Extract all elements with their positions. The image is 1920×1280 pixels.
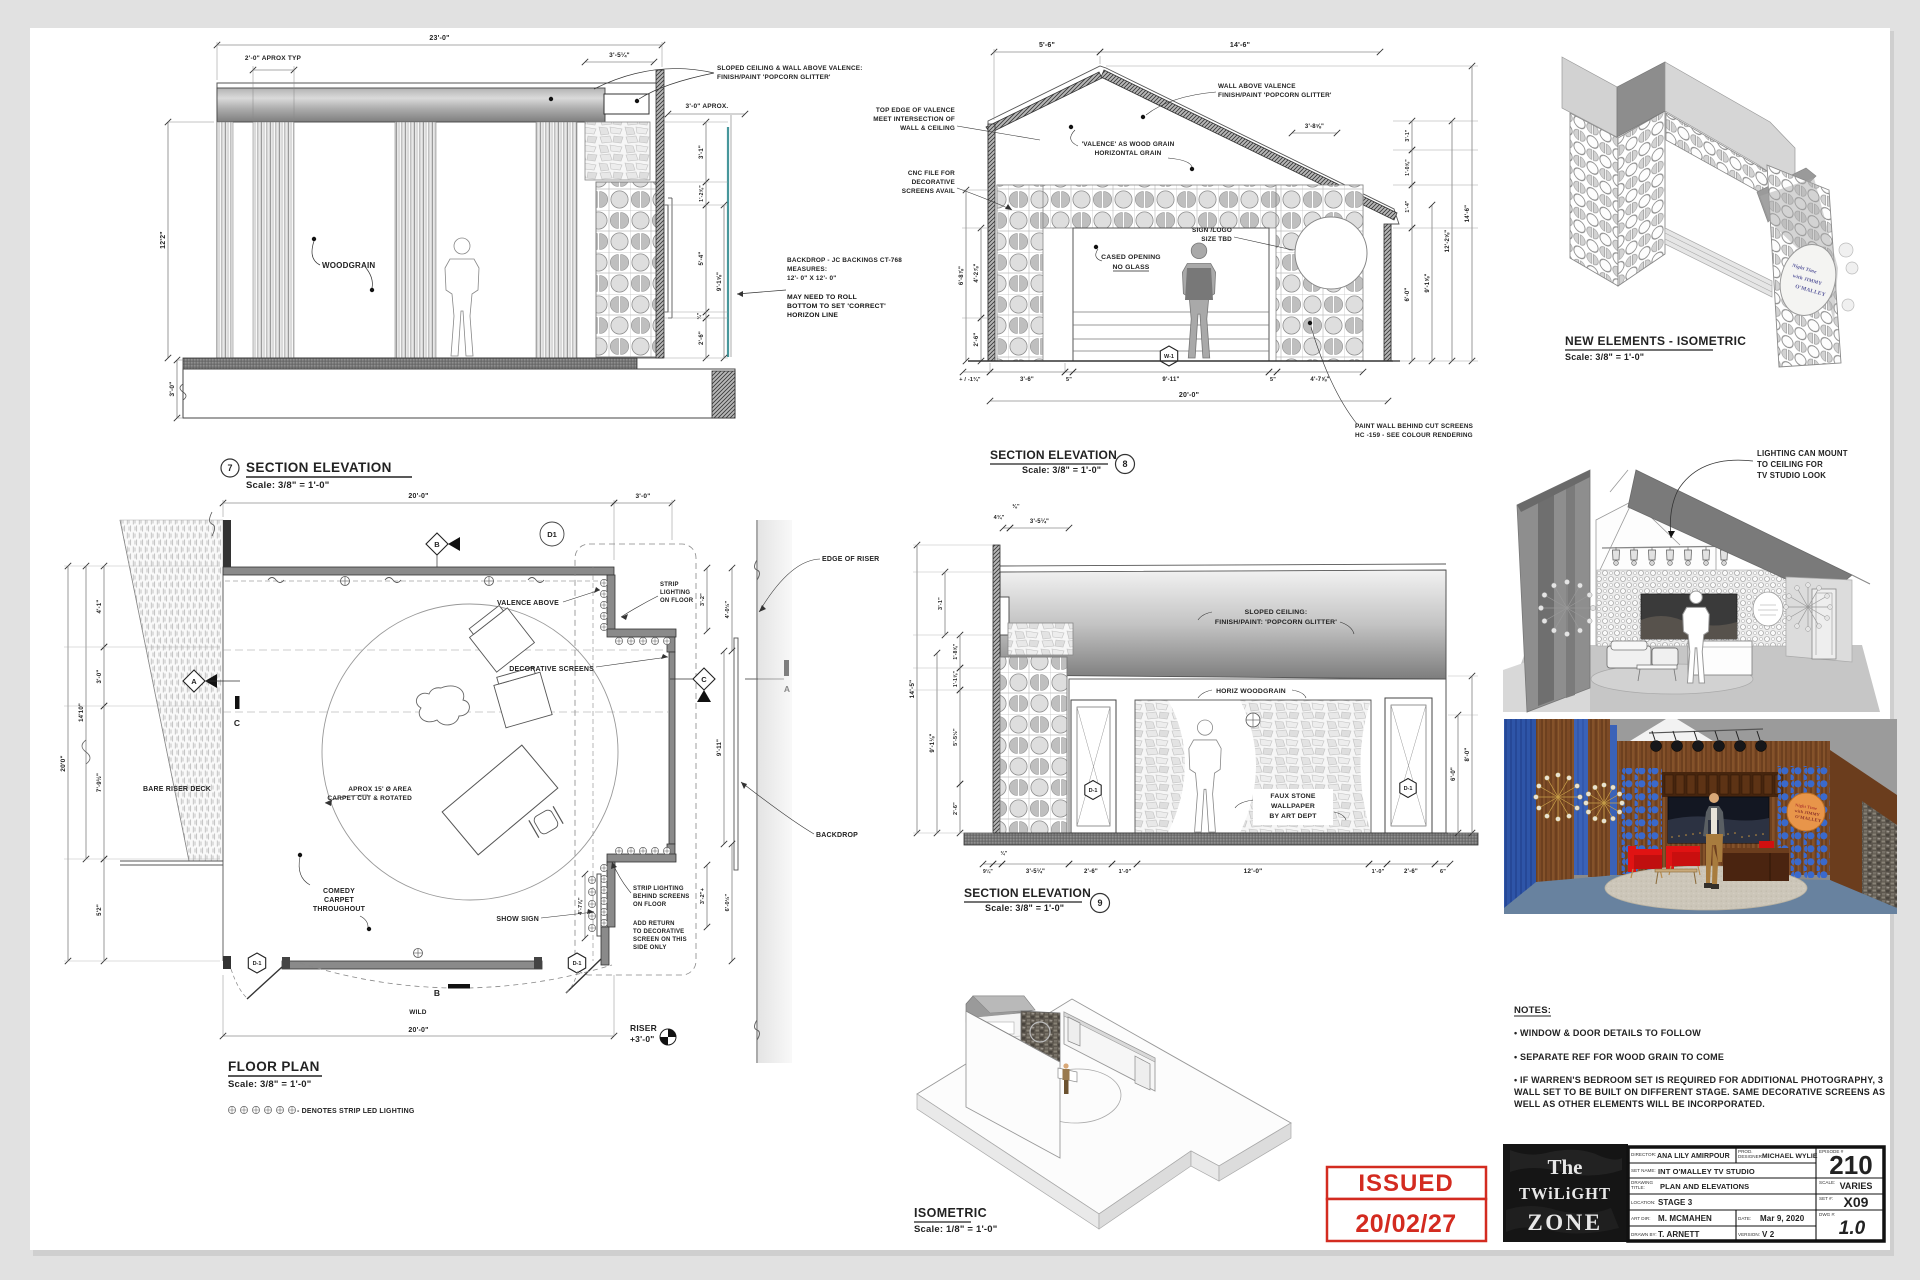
svg-text:RISER: RISER bbox=[630, 1023, 657, 1033]
svg-text:7'-9½": 7'-9½" bbox=[96, 773, 103, 792]
svg-text:6'-0": 6'-0" bbox=[1405, 288, 1411, 302]
svg-text:NOTES:: NOTES: bbox=[1514, 1005, 1551, 1016]
svg-text:VARIES: VARIES bbox=[1840, 1181, 1873, 1191]
svg-text:DATE:: DATE: bbox=[1738, 1216, 1751, 1221]
svg-text:3'-2": 3'-2" bbox=[700, 593, 706, 606]
svg-text:9'-11": 9'-11" bbox=[1162, 377, 1179, 383]
svg-text:9'-1⅛": 9'-1⅛" bbox=[930, 733, 936, 752]
svg-text:8'-0": 8'-0" bbox=[1465, 748, 1471, 762]
svg-text:DIRECTOR:: DIRECTOR: bbox=[1631, 1152, 1656, 1157]
svg-text:APROX 15' Ø AREA: APROX 15' Ø AREA bbox=[348, 786, 412, 793]
svg-text:HORIZONTAL GRAIN: HORIZONTAL GRAIN bbox=[1095, 150, 1162, 157]
svg-text:D-1: D-1 bbox=[253, 961, 262, 967]
svg-text:1'-8⅝": 1'-8⅝" bbox=[953, 643, 959, 660]
svg-text:9'-11": 9'-11" bbox=[717, 739, 723, 756]
svg-text:9: 9 bbox=[1097, 898, 1102, 908]
svg-text:20'0": 20'0" bbox=[60, 755, 67, 771]
svg-text:STRIP: STRIP bbox=[660, 582, 679, 588]
svg-text:1'-4": 1'-4" bbox=[1405, 200, 1411, 213]
svg-text:3'-2"+: 3'-2"+ bbox=[700, 888, 706, 904]
svg-text:M. MCMAHEN: M. MCMAHEN bbox=[1658, 1214, 1712, 1223]
svg-text:DECORATIVE SCREENS: DECORATIVE SCREENS bbox=[509, 666, 594, 673]
svg-text:LIGHTING: LIGHTING bbox=[660, 590, 690, 596]
svg-text:WELL AS OTHER ELEMENTS WILL BE: WELL AS OTHER ELEMENTS WILL BE INCORPORA… bbox=[1514, 1099, 1765, 1109]
svg-text:PAINT WALL BEHIND CUT SCREENS: PAINT WALL BEHIND CUT SCREENS bbox=[1355, 423, 1474, 430]
svg-text:Scale: 3/8" = 1'-0": Scale: 3/8" = 1'-0" bbox=[246, 480, 329, 491]
svg-text:9'-1⅝": 9'-1⅝" bbox=[717, 272, 723, 291]
svg-text:B: B bbox=[434, 988, 440, 998]
svg-text:3'-1": 3'-1" bbox=[1405, 129, 1411, 142]
svg-text:12'2": 12'2" bbox=[160, 231, 167, 249]
svg-text:COMEDY: COMEDY bbox=[323, 888, 355, 895]
svg-text:+3'-0": +3'-0" bbox=[630, 1034, 655, 1044]
svg-text:3'-0": 3'-0" bbox=[635, 493, 650, 500]
svg-text:PLAN AND ELEVATIONS: PLAN AND ELEVATIONS bbox=[1660, 1182, 1749, 1191]
svg-text:TO DECORATIVE: TO DECORATIVE bbox=[633, 929, 684, 935]
svg-text:6": 6" bbox=[1440, 869, 1446, 875]
svg-text:C: C bbox=[701, 675, 707, 684]
svg-text:3'-8⅝": 3'-8⅝" bbox=[1305, 124, 1324, 130]
svg-text:4'-2⅞": 4'-2⅞" bbox=[974, 263, 980, 282]
svg-text:SCALE:: SCALE: bbox=[1819, 1180, 1835, 1185]
svg-text:SIGN /LOGO: SIGN /LOGO bbox=[1192, 227, 1232, 234]
svg-text:THROUGHOUT: THROUGHOUT bbox=[313, 906, 366, 913]
svg-text:1'-0⅝": 1'-0⅝" bbox=[1405, 159, 1411, 176]
svg-text:12'-0": 12'-0" bbox=[1244, 868, 1263, 875]
svg-text:5'2": 5'2" bbox=[97, 904, 103, 916]
svg-text:5'-4": 5'-4" bbox=[699, 252, 705, 266]
svg-text:¾": ¾" bbox=[1001, 850, 1008, 857]
svg-text:D-1: D-1 bbox=[1089, 788, 1098, 794]
svg-text:SIZE TBD: SIZE TBD bbox=[1201, 236, 1232, 243]
svg-text:CARPET CUT & ROTATED: CARPET CUT & ROTATED bbox=[327, 795, 412, 802]
svg-text:3'-0": 3'-0" bbox=[169, 381, 176, 396]
svg-text:MEASURES:: MEASURES: bbox=[787, 266, 827, 273]
svg-text:D1: D1 bbox=[547, 530, 557, 539]
svg-text:MICHAEL WYLIE: MICHAEL WYLIE bbox=[1762, 1153, 1818, 1160]
svg-text:Scale: 3/8" = 1'-0": Scale: 3/8" = 1'-0" bbox=[1022, 465, 1101, 475]
svg-text:STAGE 3: STAGE 3 bbox=[1658, 1198, 1693, 1207]
svg-text:W-1: W-1 bbox=[1164, 354, 1174, 360]
svg-text:SHOW SIGN: SHOW SIGN bbox=[496, 916, 539, 923]
svg-text:SET NAME:: SET NAME: bbox=[1631, 1168, 1656, 1173]
svg-text:ON FLOOR: ON FLOOR bbox=[633, 902, 667, 908]
svg-text:1.0: 1.0 bbox=[1839, 1218, 1866, 1239]
svg-text:DECORATIVE: DECORATIVE bbox=[912, 179, 956, 186]
svg-text:SCREEN ON THIS: SCREEN ON THIS bbox=[633, 937, 687, 943]
svg-text:14'-5": 14'-5" bbox=[909, 680, 916, 699]
svg-text:ZONE: ZONE bbox=[1527, 1210, 1602, 1235]
svg-text:FINISH/PAINT: 'POPCORN GLITTER: FINISH/PAINT: 'POPCORN GLITTER' bbox=[1215, 619, 1337, 626]
svg-text:WALL SET TO BE BUILT ON DIFFER: WALL SET TO BE BUILT ON DIFFERENT STAGE.… bbox=[1514, 1087, 1885, 1097]
svg-text:SCREENS AVAIL: SCREENS AVAIL bbox=[902, 188, 955, 195]
svg-text:4'-7⅝": 4'-7⅝" bbox=[1310, 377, 1329, 383]
svg-text:SECTION ELEVATION: SECTION ELEVATION bbox=[990, 448, 1117, 462]
svg-text:WOODGRAIN: WOODGRAIN bbox=[322, 261, 375, 270]
svg-text:20'-0": 20'-0" bbox=[408, 493, 428, 500]
svg-text:FINISH/PAINT 'POPCORN GLITTER': FINISH/PAINT 'POPCORN GLITTER' bbox=[1218, 92, 1332, 99]
svg-text:3'-5¼": 3'-5¼" bbox=[1030, 518, 1049, 525]
svg-text:BARE RISER DECK: BARE RISER DECK bbox=[143, 786, 211, 793]
svg-text:D-1: D-1 bbox=[573, 961, 582, 967]
svg-text:VALENCE ABOVE: VALENCE ABOVE bbox=[497, 600, 559, 607]
svg-text:23'-0": 23'-0" bbox=[429, 35, 449, 42]
svg-text:4'-7⅞": 4'-7⅞" bbox=[578, 897, 584, 915]
svg-text:• WINDOW & DOOR DETAILS TO FO: • WINDOW & DOOR DETAILS TO FOLLOW bbox=[1514, 1028, 1701, 1038]
svg-text:- DENOTES STRIP LED LIGHTING: - DENOTES STRIP LED LIGHTING bbox=[297, 1108, 415, 1115]
svg-text:3'-1": 3'-1" bbox=[699, 145, 705, 159]
svg-text:Scale: 1/8" = 1'-0": Scale: 1/8" = 1'-0" bbox=[914, 1224, 997, 1235]
svg-text:ON FLOOR: ON FLOOR bbox=[660, 598, 694, 604]
svg-text:HORIZ WOODGRAIN: HORIZ WOODGRAIN bbox=[1216, 688, 1286, 695]
svg-text:7: 7 bbox=[227, 463, 232, 473]
svg-text:12'-2⅝": 12'-2⅝" bbox=[1445, 230, 1451, 253]
svg-text:MEET INTERSECTION OF: MEET INTERSECTION OF bbox=[873, 116, 955, 123]
svg-text:3'-5¼": 3'-5¼" bbox=[1026, 868, 1045, 875]
svg-text:WALL ABOVE VALENCE: WALL ABOVE VALENCE bbox=[1218, 83, 1296, 90]
svg-text:TITLE:: TITLE: bbox=[1631, 1185, 1645, 1190]
svg-text:HC -159 - SEE COLOUR RENDERING: HC -159 - SEE COLOUR RENDERING bbox=[1355, 432, 1473, 439]
svg-text:DRAWN BY:: DRAWN BY: bbox=[1631, 1232, 1657, 1237]
svg-text:BEHIND SCREENS: BEHIND SCREENS bbox=[633, 894, 689, 900]
svg-text:ART DIR:: ART DIR: bbox=[1631, 1216, 1651, 1221]
svg-text:ANA LILY AMIRPOUR: ANA LILY AMIRPOUR bbox=[1657, 1153, 1730, 1160]
svg-text:NEW ELEMENTS - ISOMETRIC: NEW ELEMENTS - ISOMETRIC bbox=[1565, 334, 1746, 348]
svg-text:6'-0": 6'-0" bbox=[1451, 767, 1457, 781]
svg-text:SLOPED CEILING:: SLOPED CEILING: bbox=[1245, 609, 1308, 616]
svg-text:NO GLASS: NO GLASS bbox=[1112, 264, 1149, 271]
svg-text:4'-0½": 4'-0½" bbox=[724, 600, 731, 618]
svg-text:SLOPED CEILING & WALL ABOVE VA: SLOPED CEILING & WALL ABOVE VALENCE: bbox=[717, 65, 863, 72]
svg-text:B: B bbox=[434, 540, 440, 549]
svg-text:5'-6": 5'-6" bbox=[1039, 42, 1055, 49]
svg-text:SECTION ELEVATION: SECTION ELEVATION bbox=[246, 460, 392, 475]
svg-text:14'-6": 14'-6" bbox=[1230, 42, 1250, 49]
svg-text:SET #:: SET #: bbox=[1819, 1196, 1833, 1201]
svg-text:2'-6": 2'-6" bbox=[974, 333, 980, 347]
svg-text:2'-6": 2'-6" bbox=[699, 331, 705, 345]
svg-text:D-1: D-1 bbox=[1404, 786, 1413, 792]
svg-text:2'-6": 2'-6" bbox=[953, 802, 959, 815]
svg-text:FAUX STONE: FAUX STONE bbox=[1270, 793, 1316, 800]
svg-text:8: 8 bbox=[1122, 459, 1127, 469]
svg-text:5": 5" bbox=[1066, 377, 1072, 383]
svg-text:• IF WARREN'S BEDROOM SET IS R: • IF WARREN'S BEDROOM SET IS REQUIRED FO… bbox=[1514, 1075, 1883, 1085]
svg-text:9¼": 9¼" bbox=[983, 868, 993, 875]
svg-text:T. ARNETT: T. ARNETT bbox=[1658, 1230, 1700, 1239]
svg-text:3'-0" APROX.: 3'-0" APROX. bbox=[686, 103, 729, 110]
svg-text:2'-6": 2'-6" bbox=[1084, 869, 1098, 875]
svg-text:SIDE ONLY: SIDE ONLY bbox=[633, 945, 667, 951]
svg-text:210: 210 bbox=[1829, 1150, 1872, 1180]
svg-text:4¾": 4¾" bbox=[994, 514, 1005, 521]
svg-text:DWG #:: DWG #: bbox=[1819, 1212, 1835, 1217]
svg-text:2'-6": 2'-6" bbox=[1404, 869, 1418, 875]
svg-text:BACKDROP: BACKDROP bbox=[816, 832, 858, 839]
svg-text:5'-5½": 5'-5½" bbox=[952, 728, 959, 746]
svg-text:LOCATION:: LOCATION: bbox=[1631, 1200, 1655, 1205]
svg-text:Scale: 3/8" = 1'-0": Scale: 3/8" = 1'-0" bbox=[228, 1079, 311, 1090]
svg-text:SECTION ELEVATION: SECTION ELEVATION bbox=[964, 886, 1091, 900]
svg-text:BY ART DEPT: BY ART DEPT bbox=[1269, 813, 1317, 820]
svg-text:TOP EDGE OF VALENCE: TOP EDGE OF VALENCE bbox=[876, 107, 956, 114]
svg-text:1'-0": 1'-0" bbox=[1119, 869, 1132, 875]
svg-text:6'-0½": 6'-0½" bbox=[724, 893, 731, 911]
svg-text:VERSION:: VERSION: bbox=[1738, 1232, 1760, 1237]
svg-text:CASED OPENING: CASED OPENING bbox=[1101, 254, 1161, 261]
svg-text:WALLPAPER: WALLPAPER bbox=[1271, 803, 1315, 810]
svg-text:'VALENCE' AS WOOD GRAIN: 'VALENCE' AS WOOD GRAIN bbox=[1082, 141, 1175, 148]
svg-text:3'-5¼": 3'-5¼" bbox=[609, 51, 630, 59]
svg-text:¾": ¾" bbox=[696, 312, 703, 319]
svg-text:Mar 9, 2020: Mar 9, 2020 bbox=[1760, 1214, 1805, 1223]
svg-text:LIGHTING CAN MOUNT: LIGHTING CAN MOUNT bbox=[1757, 449, 1848, 458]
svg-text:EDGE OF RISER: EDGE OF RISER bbox=[822, 556, 879, 563]
svg-text:FLOOR PLAN: FLOOR PLAN bbox=[228, 1059, 320, 1074]
svg-text:C: C bbox=[234, 718, 240, 728]
svg-text:Scale: 3/8" = 1'-0": Scale: 3/8" = 1'-0" bbox=[1565, 352, 1644, 362]
svg-text:ISSUED: ISSUED bbox=[1358, 1170, 1453, 1197]
svg-text:ISOMETRIC: ISOMETRIC bbox=[914, 1206, 987, 1220]
svg-text:X09: X09 bbox=[1844, 1194, 1869, 1210]
svg-text:STRIP LIGHTING: STRIP LIGHTING bbox=[633, 886, 684, 892]
svg-text:+ / -1¾": + / -1¾" bbox=[959, 376, 981, 383]
svg-text:3'-0": 3'-0" bbox=[97, 670, 103, 684]
svg-text:A: A bbox=[191, 677, 197, 686]
svg-text:CARPET: CARPET bbox=[324, 897, 355, 904]
svg-text:CNC FILE FOR: CNC FILE FOR bbox=[908, 170, 955, 177]
svg-text:WALL & CEILING: WALL & CEILING bbox=[900, 125, 955, 132]
svg-text:BACKDROP - JC BACKINGS CT-768: BACKDROP - JC BACKINGS CT-768 bbox=[787, 257, 902, 264]
svg-text:ADD RETURN: ADD RETURN bbox=[633, 921, 675, 927]
svg-text:1'-0": 1'-0" bbox=[1372, 869, 1385, 875]
svg-text:5": 5" bbox=[1270, 377, 1276, 383]
svg-text:6'-8⅞": 6'-8⅞" bbox=[959, 266, 965, 285]
svg-text:12'- 0" X 12'- 0": 12'- 0" X 12'- 0" bbox=[787, 275, 836, 282]
svg-text:DESIGNER:: DESIGNER: bbox=[1738, 1154, 1763, 1159]
svg-text:⅜": ⅜" bbox=[1012, 504, 1020, 510]
svg-text:14'-6": 14'-6" bbox=[1465, 205, 1471, 222]
svg-text:The: The bbox=[1547, 1155, 1582, 1179]
svg-text:• SEPARATE REF FOR WOOD GRAIN: • SEPARATE REF FOR WOOD GRAIN TO COME bbox=[1514, 1052, 1724, 1062]
svg-text:TO CEILING FOR: TO CEILING FOR bbox=[1757, 460, 1823, 469]
svg-text:FINISH/PAINT 'POPCORN GLITTER': FINISH/PAINT 'POPCORN GLITTER' bbox=[717, 74, 831, 81]
svg-text:20'-0": 20'-0" bbox=[1179, 392, 1199, 399]
svg-text:1'-2⅝": 1'-2⅝" bbox=[699, 185, 705, 202]
svg-text:V 2: V 2 bbox=[1762, 1230, 1775, 1239]
svg-text:1'-1⅝": 1'-1⅝" bbox=[953, 670, 959, 687]
svg-text:2'-0" APROX TYP: 2'-0" APROX TYP bbox=[245, 55, 302, 62]
svg-text:WILD: WILD bbox=[409, 1009, 427, 1016]
svg-text:HORIZON LINE: HORIZON LINE bbox=[787, 312, 838, 319]
svg-text:TV STUDIO LOOK: TV STUDIO LOOK bbox=[1757, 471, 1826, 480]
svg-text:Scale: 3/8" = 1'-0": Scale: 3/8" = 1'-0" bbox=[985, 903, 1064, 913]
svg-text:3'-6": 3'-6" bbox=[1020, 377, 1034, 383]
svg-text:4'-1": 4'-1" bbox=[97, 600, 103, 614]
svg-text:20'-0": 20'-0" bbox=[408, 1027, 428, 1034]
svg-text:9'-1⅝": 9'-1⅝" bbox=[1425, 273, 1431, 292]
svg-text:TWiLiGHT: TWiLiGHT bbox=[1519, 1184, 1611, 1203]
svg-text:BOTTOM TO SET 'CORRECT': BOTTOM TO SET 'CORRECT' bbox=[787, 303, 886, 310]
svg-text:20/02/27: 20/02/27 bbox=[1355, 1210, 1456, 1238]
svg-text:3'-1": 3'-1" bbox=[938, 597, 944, 610]
svg-text:MAY NEED TO ROLL: MAY NEED TO ROLL bbox=[787, 294, 857, 301]
svg-text:INT O'MALLEY TV STUDIO: INT O'MALLEY TV STUDIO bbox=[1658, 1167, 1755, 1176]
